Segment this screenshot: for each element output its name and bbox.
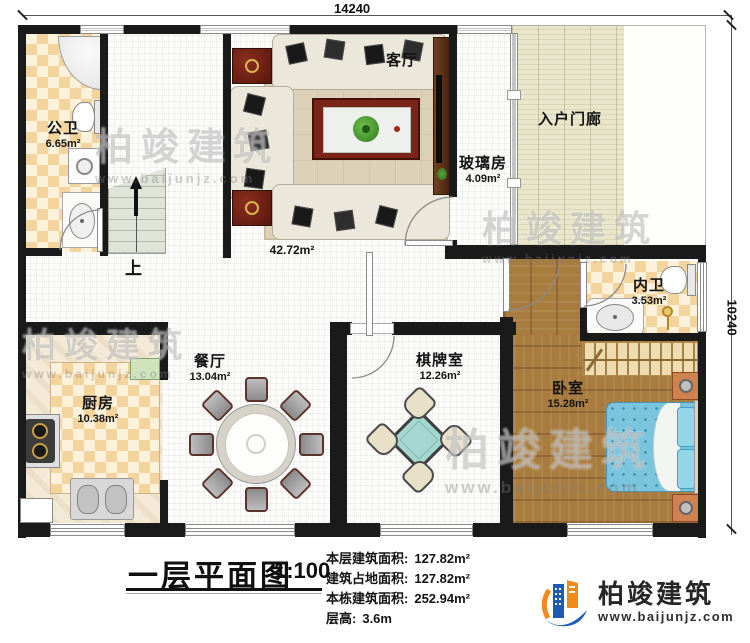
wall-mid-kitchen-top [18,322,168,335]
plan-scale: 1:100 [274,558,330,584]
door-leaf-bath [97,208,103,252]
faucet-dot [613,315,617,319]
stat-line: 层高:3.6m [326,609,470,629]
tv-screen [436,75,442,163]
company-url: www.baijunjz.com [598,609,734,624]
sink-basin [105,485,127,514]
sofa-pillow [324,39,346,61]
dining-chair [299,433,324,456]
wall-bottom [295,523,380,537]
room-label-porch: 入户门廊 [536,111,604,129]
door-post [507,90,521,100]
door-leaf-innerbath [580,262,587,308]
coffee-table [312,98,420,160]
side-table-bottom [232,190,272,226]
porch-outside-paving [622,25,706,245]
stairs-arrow-shaft [134,188,138,216]
wall-chess-left [330,322,347,523]
kitchen-sink [70,478,134,520]
side-table-ornament [245,59,259,73]
stat-line: 本层建筑面积:127.82m² [326,549,470,569]
dining-chair [189,433,214,456]
bed-sheet [653,403,680,491]
window-bottom-chess [380,524,473,536]
wall-bath-bottom [18,248,62,256]
dining-table [216,404,296,484]
bed [606,402,698,492]
wall-chess-bedroom [500,317,513,523]
company-name: 柏竣建筑 [598,579,734,609]
plant-center [362,125,370,133]
side-table-top [232,48,272,84]
sink-basin [77,485,99,514]
building-stats: 本层建筑面积:127.82m² 建筑占地面积:127.82m² 本栋建筑面积:2… [326,549,470,629]
room-label-bedroom: 卧室15.28m² [538,380,598,411]
sofa-pillow [285,42,308,65]
lamp [679,379,693,393]
stairs-up-label: 上 [125,254,142,279]
living-area-value: 42.72m² [260,243,324,257]
wall-below-porch [445,245,706,259]
wall-kitchen-right [160,480,168,523]
stairs-guide-line [136,216,137,252]
burner [32,443,48,459]
room-label-inner-bath: 内卫3.53m² [619,277,679,308]
toilet-brush-handle [667,316,669,330]
dining-chair [245,377,268,402]
corner-window-box [20,498,53,523]
sofa-pillow [244,168,265,189]
window-top-glassroom [457,25,512,34]
title-underline-thin [126,593,322,594]
tv-cabinet [433,37,450,195]
sofa-bottom [272,184,450,240]
glassroom-porch-frame [510,33,518,245]
window-bottom-dining [185,524,295,536]
room-label-kitchen: 厨房10.38m² [68,395,128,426]
sofa-pillow [291,205,313,227]
wardrobe [582,342,698,376]
faucet-dot [80,219,84,223]
dimension-top-value: 14240 [334,1,370,16]
dining-table-center [246,434,266,454]
nightstand-top [672,372,700,400]
room-label-chess: 棋牌室12.26m² [408,352,472,383]
room-label-living: 客厅 [378,52,426,70]
wall-living-left [223,33,231,258]
window-innerbath-right [697,262,707,332]
dimension-line-top [22,15,732,16]
window-top-bath [80,25,124,34]
entry-porch-platform [512,25,624,245]
wall-bottom [18,523,50,537]
wall-top [290,25,457,34]
kitchen-floor [50,362,160,494]
burner [32,423,48,439]
wall-left [18,25,26,538]
wall-top [124,25,200,34]
inner-toilet-tank [687,264,696,296]
door-leaf-livingroom [405,240,453,246]
sofa-pillow [334,210,355,231]
dimension-line-right [731,15,732,535]
table-decor [394,126,400,132]
stat-line: 本栋建筑面积:252.94m² [326,589,470,609]
sofa-pillow [375,205,398,228]
room-label-dining: 餐厅13.04m² [180,353,240,384]
sofa-pillow [247,129,269,151]
cutting-board [130,358,160,380]
company-logo-icon [538,574,592,628]
window-bottom-bedroom [567,524,653,536]
wall-mid-chess-top [392,322,516,335]
stove [20,414,60,468]
stat-line: 建筑占地面积:127.82m² [326,569,470,589]
wall-bottom [473,523,567,537]
room-label-glassroom: 玻璃房4.09m² [455,155,511,186]
wall-kitchen-right [160,322,168,380]
wardrobe-hanger [586,348,603,371]
bath-sink-counter [62,192,102,248]
company-logo: 柏竣建筑 www.baijunjz.com [538,574,734,628]
door-leaf-bedroom [503,258,510,312]
washer-drum [76,158,93,175]
mahjong-table-inner [399,420,439,460]
dining-chair [245,487,268,512]
wall-innerbath-bottom [580,333,706,341]
title-underline [126,588,322,591]
side-table-ornament [245,201,259,215]
window-top-living [200,25,290,34]
floor-plan-page: 上 [0,0,750,643]
door-leaf-chess [366,252,373,336]
dimension-right-value: 10240 [725,299,740,335]
lamp [679,501,693,515]
wall-top [18,25,80,34]
wall-bottom [125,523,185,537]
room-label-public-bath: 公卫6.65m² [33,120,93,151]
washing-machine [68,148,100,184]
window-bottom-kitchen [50,524,125,536]
sofa-pillow [243,93,266,116]
nightstand-bottom [672,494,700,522]
plant-small [437,168,447,180]
